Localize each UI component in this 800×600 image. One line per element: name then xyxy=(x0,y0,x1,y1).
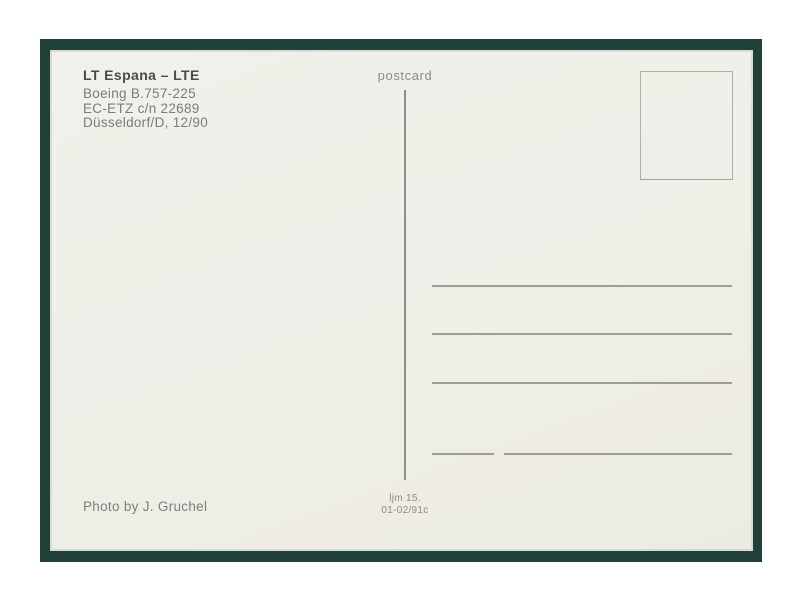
address-line-2 xyxy=(432,333,732,335)
publisher-code-line-2: 01-02/91c xyxy=(305,505,505,517)
address-line-1 xyxy=(432,285,732,287)
publisher-code-line-1: ljm 15. xyxy=(305,493,505,505)
postcard-mount-frame: LT Espana – LTE Boeing B.757-225 EC-ETZ … xyxy=(40,39,762,562)
publisher-code-block: ljm 15. 01-02/91c xyxy=(305,493,505,517)
caption-line-location-date: Düsseldorf/D, 12/90 xyxy=(83,116,208,131)
center-divider-line xyxy=(404,90,406,480)
caption-title: LT Espana – LTE xyxy=(83,66,208,84)
stamp-box xyxy=(640,71,733,180)
address-line-4-postal-code xyxy=(432,453,494,455)
caption-line-aircraft: Boeing B.757-225 xyxy=(83,87,208,102)
address-line-4-city xyxy=(504,453,732,455)
page-background: { "colors": { "page_background": "#fffff… xyxy=(0,0,800,600)
postcard-paper: LT Espana – LTE Boeing B.757-225 EC-ETZ … xyxy=(52,52,751,549)
address-line-3 xyxy=(432,382,732,384)
postcard-type-label: postcard xyxy=(305,68,505,83)
caption-block: LT Espana – LTE Boeing B.757-225 EC-ETZ … xyxy=(83,66,208,131)
photo-credit: Photo by J. Gruchel xyxy=(83,499,207,514)
caption-line-registration: EC-ETZ c/n 22689 xyxy=(83,102,208,117)
